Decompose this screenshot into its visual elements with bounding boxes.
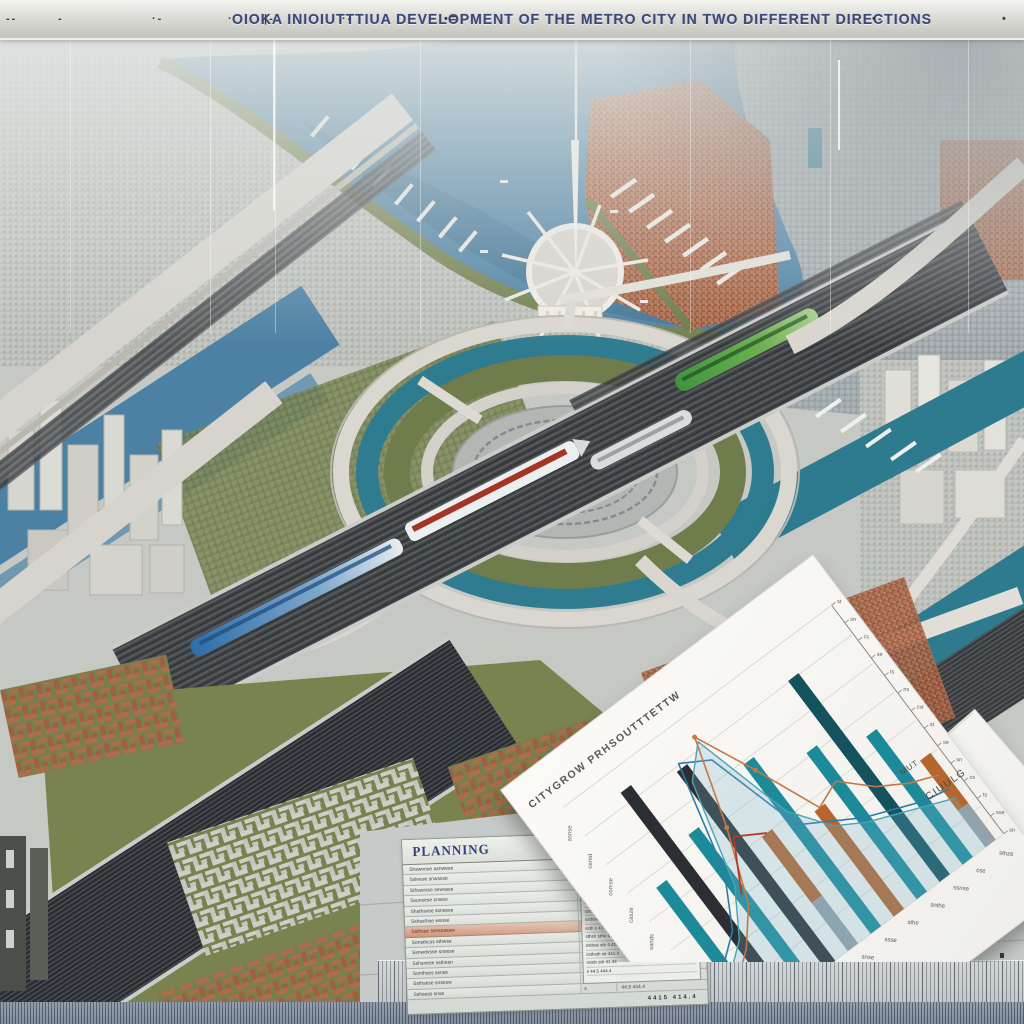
dark-slab-buildings xyxy=(0,836,48,991)
reflection-gridline xyxy=(210,38,211,333)
banner-mark: |- xyxy=(264,13,275,25)
table-cell xyxy=(577,858,613,869)
banner-mark: ·- xyxy=(342,13,353,25)
planning-subtable: ssthse sths 41.4ssth sthsth 4.75ssthsv s… xyxy=(580,892,701,984)
banner-mark: · xyxy=(228,13,234,25)
reflection-gridline xyxy=(830,38,831,333)
banner-mark: -- xyxy=(6,13,17,25)
banner-mark: - xyxy=(58,13,64,25)
banner-mark: • xyxy=(1002,13,1008,25)
banner-mark: •- xyxy=(872,13,884,25)
poster-board: OIOKA INIOIUTTTIUA DEVELOPMENT OF THE ME… xyxy=(0,0,1024,1024)
reflection-gridline xyxy=(70,38,71,333)
table-cell xyxy=(578,879,614,890)
table-footer-numbers: 4415 414.4 xyxy=(648,994,698,1002)
poster-title: OIOKA INIOIUTTTIUA DEVELOPMENT OF THE ME… xyxy=(232,11,932,28)
line-chart-on-board xyxy=(830,735,1024,975)
reflection-gridline xyxy=(420,38,421,333)
table-header-dates: DITES xyxy=(576,830,703,858)
reflection-gridline xyxy=(275,38,276,333)
reflection-gridline xyxy=(690,38,691,333)
flag-pole xyxy=(838,60,840,150)
planning-table: PLANNING DITES Shswnnse asnweseSslnese s… xyxy=(401,829,709,1015)
glass-tower-teal xyxy=(808,128,822,168)
table-header-planning: PLANNING xyxy=(402,838,576,861)
reflection-gridline xyxy=(968,38,969,333)
table-cell: sth xyxy=(577,868,613,879)
banner-mark: •= xyxy=(444,13,458,25)
title-banner: OIOKA INIOIUTTTIUA DEVELOPMENT OF THE ME… xyxy=(0,0,1024,40)
flag-pole xyxy=(273,40,275,210)
table-cell: s xyxy=(581,983,617,994)
banner-mark: ·- xyxy=(152,13,163,25)
